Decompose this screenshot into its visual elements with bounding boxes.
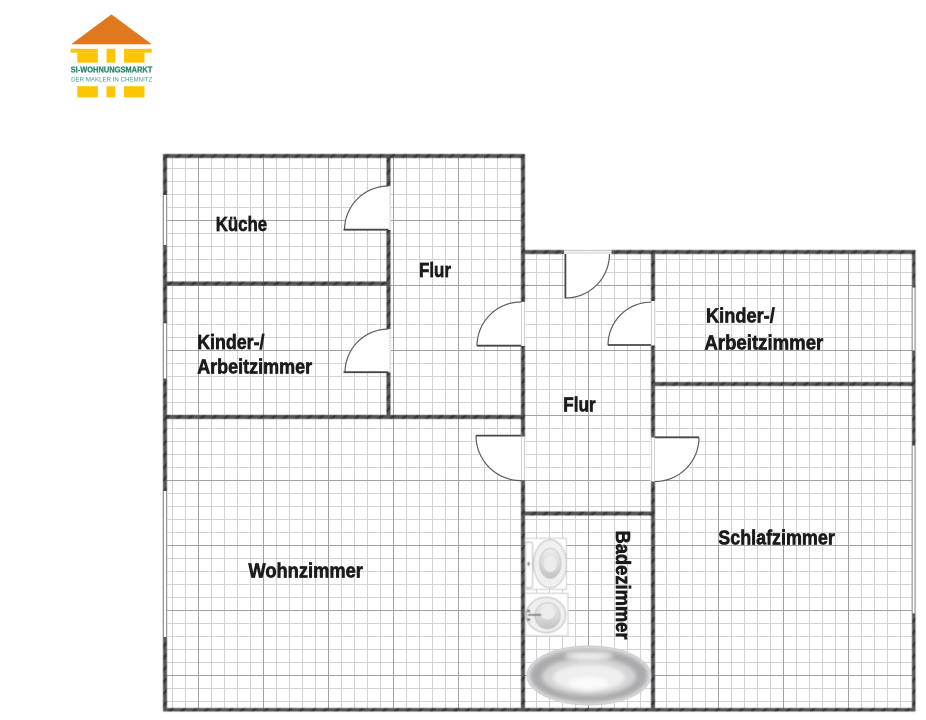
svg-text:Arbeitzimmer: Arbeitzimmer (704, 331, 823, 354)
svg-text:Arbeitzimmer: Arbeitzimmer (197, 355, 312, 378)
svg-text:Flur: Flur (563, 394, 595, 417)
svg-text:SI-WOHNUNGSMARKT: SI-WOHNUNGSMARKT (71, 66, 153, 75)
svg-text:Badezimmer: Badezimmer (611, 531, 634, 640)
svg-text:Kinder-/: Kinder-/ (706, 305, 775, 328)
svg-text:DER MAKLER IN CHEMNITZ: DER MAKLER IN CHEMNITZ (71, 78, 153, 84)
svg-text:Küche: Küche (216, 213, 267, 236)
svg-text:Wohnzimmer: Wohnzimmer (248, 560, 363, 583)
svg-text:Schlafzimmer: Schlafzimmer (718, 527, 835, 550)
svg-text:Flur: Flur (419, 259, 451, 282)
svg-text:Kinder-/: Kinder-/ (197, 331, 265, 354)
